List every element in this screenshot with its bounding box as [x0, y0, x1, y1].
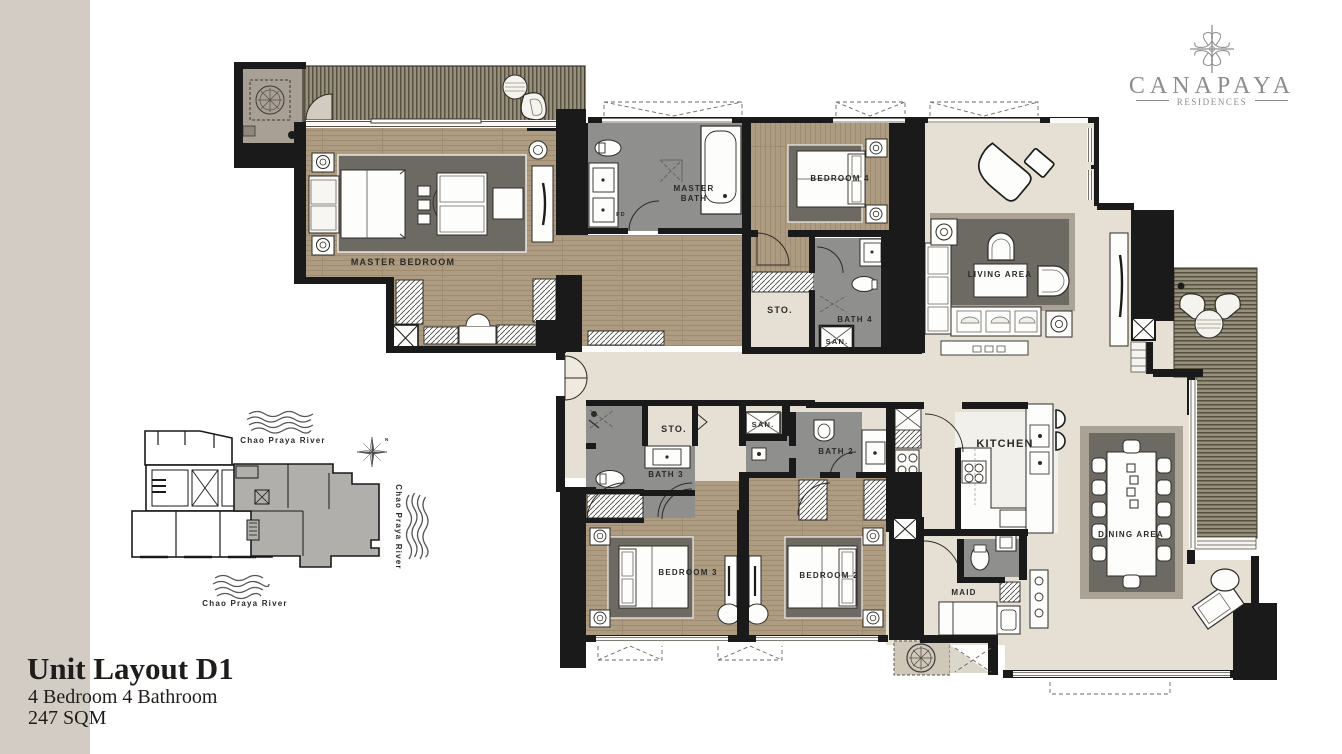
svg-text:RESIDENCES: RESIDENCES — [1177, 97, 1248, 107]
svg-text:SAN.: SAN. — [752, 420, 775, 429]
svg-text:MAID: MAID — [951, 588, 976, 597]
svg-text:BATH 2: BATH 2 — [818, 447, 854, 456]
svg-text:4 Bedroom 4 Bathroom: 4 Bedroom 4 Bathroom — [28, 686, 218, 708]
svg-text:Unit Layout D1: Unit Layout D1 — [27, 651, 234, 686]
svg-text:KITCHEN: KITCHEN — [976, 438, 1033, 450]
svg-text:Chao Praya River: Chao Praya River — [394, 484, 403, 569]
svg-text:FD: FD — [616, 212, 626, 218]
svg-text:BEDROOM 3: BEDROOM 3 — [658, 568, 717, 577]
svg-text:BATH: BATH — [681, 194, 707, 203]
svg-text:Chao Praya River: Chao Praya River — [240, 436, 325, 445]
svg-text:BEDROOM 4: BEDROOM 4 — [810, 174, 869, 183]
svg-text:BATH 3: BATH 3 — [648, 470, 684, 479]
svg-text:Chao Praya River: Chao Praya River — [202, 599, 287, 608]
svg-text:BEDROOM 2: BEDROOM 2 — [799, 571, 858, 580]
svg-text:STO.: STO. — [767, 305, 793, 315]
svg-text:CANAPAYA: CANAPAYA — [1129, 73, 1295, 99]
svg-text:LIVING AREA: LIVING AREA — [968, 270, 1032, 279]
svg-text:STO.: STO. — [661, 424, 687, 434]
svg-text:MASTER: MASTER — [674, 184, 715, 193]
svg-text:BATH 4: BATH 4 — [837, 315, 873, 324]
svg-text:MASTER BEDROOM: MASTER BEDROOM — [351, 257, 455, 267]
svg-text:DINING AREA: DINING AREA — [1098, 530, 1164, 539]
svg-text:247 SQM: 247 SQM — [28, 707, 107, 729]
svg-text:N: N — [385, 437, 389, 442]
svg-text:SAN.: SAN. — [826, 337, 849, 346]
